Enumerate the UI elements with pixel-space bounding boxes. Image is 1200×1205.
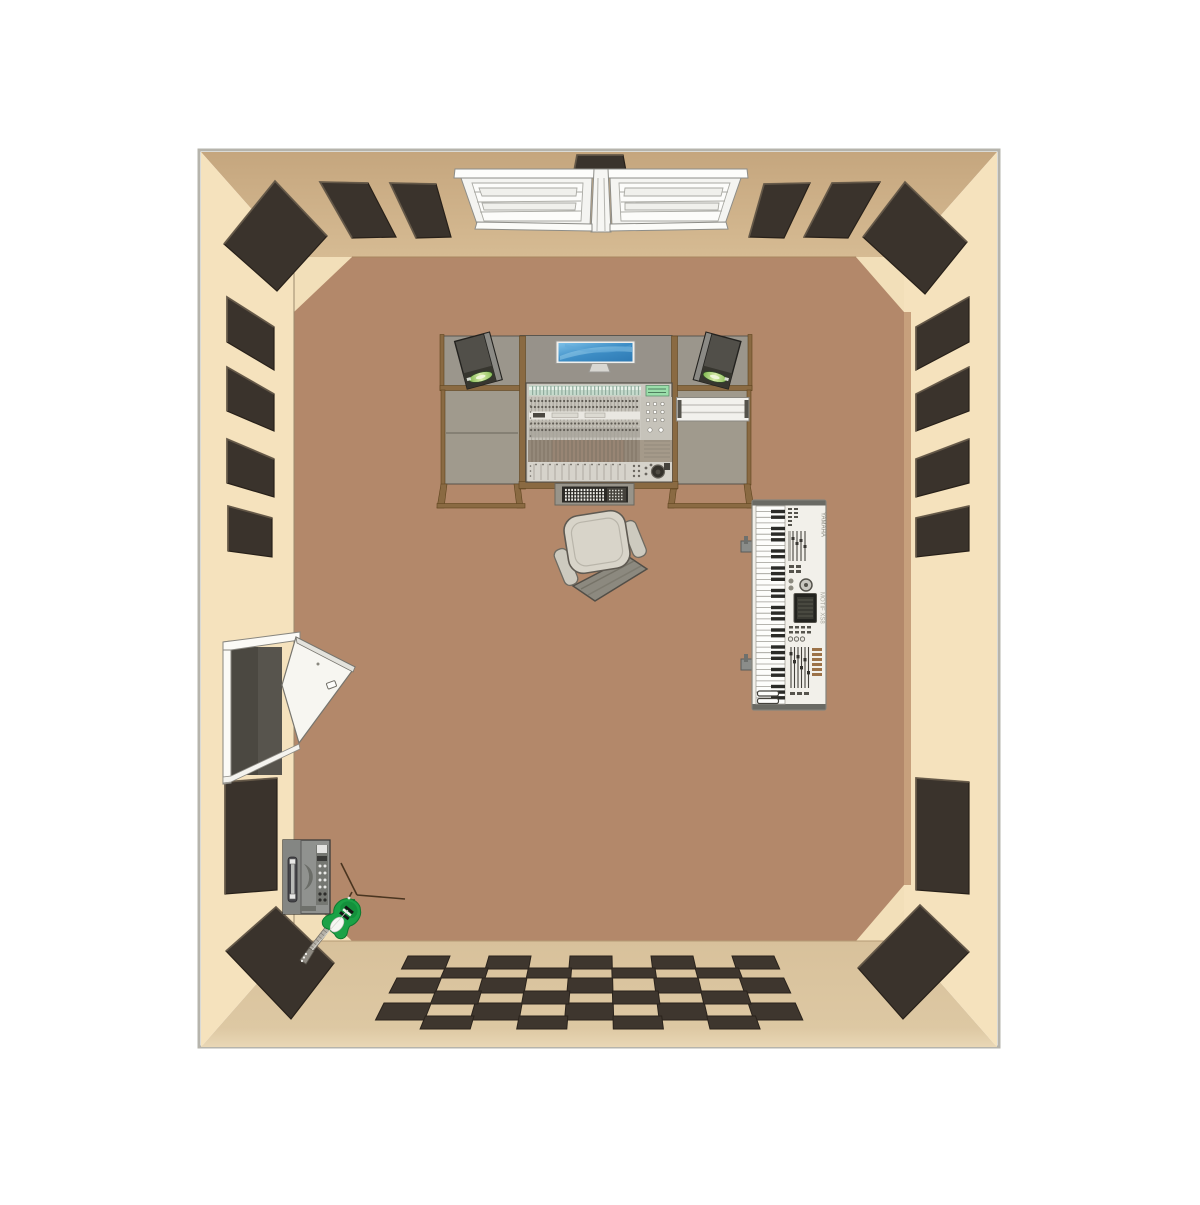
svg-text:YAMAHA: YAMAHA — [820, 512, 826, 537]
svg-text:MOTIF XS8: MOTIF XS8 — [819, 592, 825, 624]
